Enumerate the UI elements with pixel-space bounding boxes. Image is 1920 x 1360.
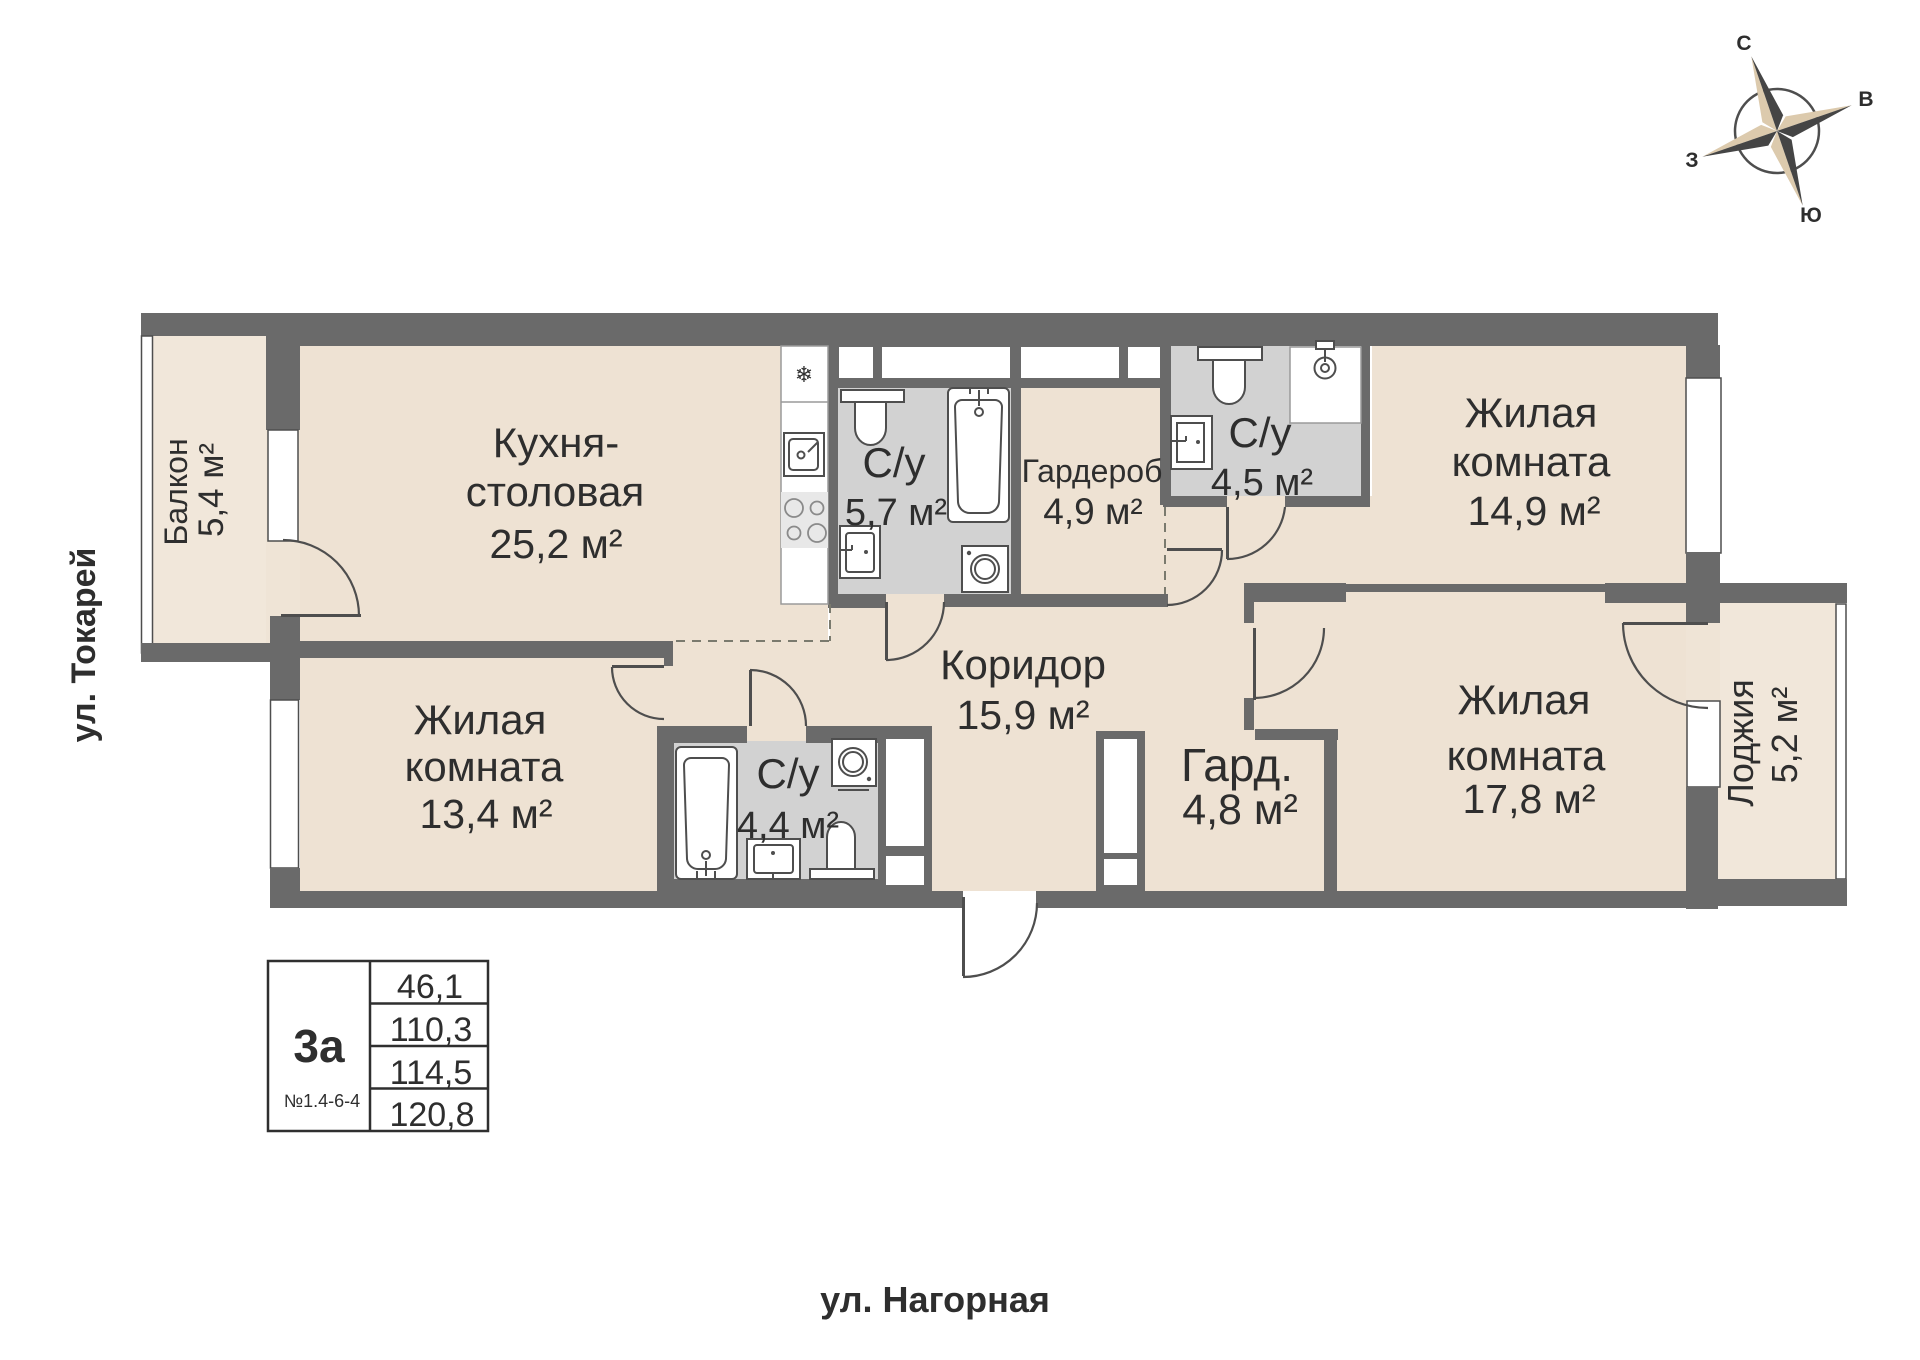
svg-text:ул. Токарей: ул. Токарей [65,548,103,743]
svg-text:Коридор: Коридор [940,641,1106,688]
svg-text:4,5 м²: 4,5 м² [1211,462,1313,504]
svg-text:4,4 м²: 4,4 м² [737,805,839,847]
svg-text:Жилая: Жилая [1465,389,1598,436]
svg-text:Гардероб: Гардероб [1022,453,1163,489]
svg-text:❄: ❄ [795,362,813,387]
svg-text:комната: комната [405,743,564,790]
svg-text:5,2 м²: 5,2 м² [1764,687,1805,784]
svg-text:Кухня-: Кухня- [493,419,619,466]
svg-text:114,5: 114,5 [390,1054,473,1092]
svg-text:З: З [1685,149,1698,172]
svg-text:Жилая: Жилая [414,696,547,743]
svg-text:В: В [1858,88,1873,111]
svg-text:13,4 м²: 13,4 м² [419,791,552,837]
svg-text:Гард.: Гард. [1181,739,1293,791]
svg-text:5,4 м²: 5,4 м² [192,443,231,537]
svg-text:4,9 м²: 4,9 м² [1043,491,1142,532]
svg-text:5,7 м²: 5,7 м² [845,492,947,534]
svg-text:С/у: С/у [757,750,820,797]
svg-text:46,1: 46,1 [397,968,463,1006]
svg-text:120,8: 120,8 [389,1096,474,1134]
svg-text:3а: 3а [293,1020,345,1072]
svg-text:110,3: 110,3 [390,1011,473,1049]
svg-text:ул. Нагорная: ул. Нагорная [820,1279,1050,1320]
svg-text:Лоджия: Лоджия [1720,679,1761,807]
svg-text:14,9 м²: 14,9 м² [1467,488,1600,534]
svg-text:С/у: С/у [1229,409,1292,456]
svg-text:25,2 м²: 25,2 м² [489,521,622,567]
svg-text:комната: комната [1447,732,1606,779]
svg-text:Жилая: Жилая [1458,676,1591,723]
svg-text:№1.4-6-4: №1.4-6-4 [284,1091,360,1111]
svg-text:17,8 м²: 17,8 м² [1462,776,1595,822]
svg-text:С/у: С/у [863,439,926,486]
svg-text:15,9 м²: 15,9 м² [956,692,1089,738]
svg-text:комната: комната [1452,438,1611,485]
svg-text:Балкон: Балкон [158,438,194,545]
svg-text:С: С [1736,32,1751,55]
svg-text:столовая: столовая [466,468,644,515]
svg-text:Ю: Ю [1800,204,1822,227]
svg-text:4,8 м²: 4,8 м² [1182,786,1298,834]
